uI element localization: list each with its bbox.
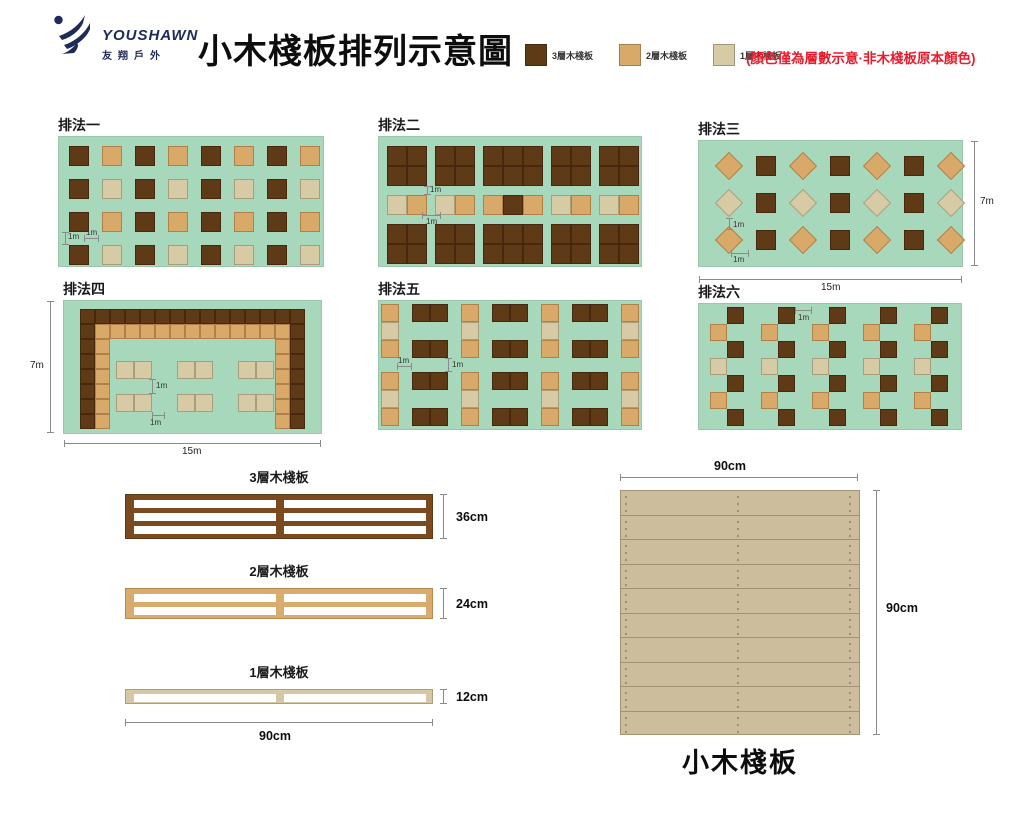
nail-dot bbox=[737, 692, 739, 694]
pallet-3layer bbox=[503, 146, 523, 166]
pallet-2layer bbox=[914, 392, 931, 409]
plank bbox=[621, 540, 859, 565]
pallet-1layer bbox=[387, 195, 407, 215]
pallet-3layer bbox=[572, 408, 590, 426]
nail-dot bbox=[849, 626, 851, 628]
pallet-3layer bbox=[412, 304, 430, 322]
pallet-3layer bbox=[931, 409, 948, 426]
pallet-3layer bbox=[756, 230, 776, 250]
nail-dot bbox=[737, 584, 739, 586]
pallet-3layer bbox=[230, 309, 245, 324]
pallet-2layer bbox=[461, 408, 479, 426]
pallet-3layer bbox=[455, 166, 475, 186]
legend-swatch-3layer bbox=[525, 44, 547, 66]
brand-name: YOUSHAWN bbox=[102, 27, 198, 44]
pallet-3layer bbox=[483, 166, 503, 186]
pallet-2layer bbox=[381, 304, 399, 322]
pallet-2layer bbox=[621, 304, 639, 322]
pallet-3layer bbox=[599, 146, 619, 166]
nail-dot bbox=[625, 521, 627, 523]
pallet-top-view bbox=[620, 490, 860, 735]
pallet-2layer bbox=[863, 152, 891, 180]
pallet-3layer bbox=[931, 341, 948, 358]
dimension-label: 90cm bbox=[259, 729, 291, 743]
pallet-2layer bbox=[523, 195, 543, 215]
pallet-3layer bbox=[267, 146, 287, 166]
pallet-3layer bbox=[503, 195, 523, 215]
pallet-3layer bbox=[551, 244, 571, 264]
pallet-2layer bbox=[621, 340, 639, 358]
dimension-label: 1m bbox=[798, 313, 809, 322]
nail-dot bbox=[625, 643, 627, 645]
plank bbox=[621, 589, 859, 614]
nail-dot bbox=[849, 510, 851, 512]
pallet-2layer bbox=[863, 226, 891, 254]
pallet-3layer bbox=[201, 212, 221, 232]
brand-subtitle: 友翔戶外 bbox=[102, 47, 198, 62]
dimension-line bbox=[152, 379, 153, 394]
plank bbox=[621, 687, 859, 712]
pallet-2layer bbox=[812, 392, 829, 409]
pallet-3layer bbox=[503, 244, 523, 264]
pallet-1layer bbox=[541, 390, 559, 408]
pallet-1layer bbox=[761, 358, 778, 375]
youshawn-logo-icon bbox=[52, 14, 98, 60]
pallet-2layer bbox=[140, 324, 155, 339]
pallet-1layer bbox=[300, 179, 320, 199]
pallet-2layer bbox=[95, 324, 110, 339]
pallet-2layer bbox=[715, 152, 743, 180]
pallet-1layer bbox=[541, 322, 559, 340]
nail-dot bbox=[625, 633, 627, 635]
pallet-2layer bbox=[710, 324, 727, 341]
pallet-1layer bbox=[234, 179, 254, 199]
pallet-3layer bbox=[290, 339, 305, 354]
pallet-3layer bbox=[756, 193, 776, 213]
pallet-3layer bbox=[215, 309, 230, 324]
pallet-3layer bbox=[430, 408, 448, 426]
pallet-3layer bbox=[407, 244, 427, 264]
pallet-1layer bbox=[812, 358, 829, 375]
pallet-3layer bbox=[80, 369, 95, 384]
pallet-3layer bbox=[551, 224, 571, 244]
layout-canvas-five: 1m1m bbox=[378, 300, 642, 430]
pallet-3layer bbox=[200, 309, 215, 324]
pallet-2layer bbox=[483, 195, 503, 215]
nail-dot bbox=[737, 577, 739, 579]
pallet-3layer bbox=[830, 193, 850, 213]
plank-slot bbox=[284, 500, 426, 508]
pallet-3layer bbox=[829, 375, 846, 392]
nail-dot bbox=[625, 626, 627, 628]
pallet-2layer bbox=[461, 304, 479, 322]
nail-dot bbox=[625, 682, 627, 684]
nail-dot bbox=[849, 657, 851, 659]
pallet-3layer bbox=[407, 166, 427, 186]
pallet-2layer bbox=[95, 369, 110, 384]
pallet-3layer bbox=[727, 409, 744, 426]
nail-dot bbox=[737, 503, 739, 505]
pallet-1layer bbox=[234, 245, 254, 265]
nail-dot bbox=[737, 608, 739, 610]
nail-dot bbox=[849, 643, 851, 645]
nail-dot bbox=[737, 570, 739, 572]
pallet-3layer bbox=[140, 309, 155, 324]
pallet-3layer bbox=[590, 340, 608, 358]
pallet-3layer bbox=[492, 372, 510, 390]
pallet-3layer bbox=[125, 309, 140, 324]
pallet-2layer bbox=[914, 324, 931, 341]
pallet-3layer bbox=[492, 340, 510, 358]
pallet-3layer bbox=[778, 307, 795, 324]
pallet-3layer bbox=[407, 224, 427, 244]
pallet-2layer bbox=[541, 408, 559, 426]
pallet-1layer bbox=[621, 390, 639, 408]
pallet-3layer bbox=[492, 408, 510, 426]
pallet-2layer bbox=[260, 324, 275, 339]
pallet-2layer bbox=[95, 399, 110, 414]
pallet-3layer bbox=[599, 166, 619, 186]
pallet-2layer bbox=[234, 146, 254, 166]
plank bbox=[621, 565, 859, 590]
pallet-arrangement-poster: YOUSHAWN 友翔戶外 小木棧板排列示意圖 3層木棧板 2層木棧板 1層木棧… bbox=[0, 0, 1024, 821]
pallet-2layer bbox=[789, 226, 817, 254]
nail-dot bbox=[625, 552, 627, 554]
pallet-2layer bbox=[789, 152, 817, 180]
pallet-2layer bbox=[407, 195, 427, 215]
pallet-2layer bbox=[185, 324, 200, 339]
dimension-label: 1m bbox=[68, 232, 79, 241]
pallet-3layer bbox=[880, 341, 897, 358]
pallet-3layer bbox=[590, 372, 608, 390]
pallet-2layer bbox=[234, 212, 254, 232]
layout-canvas-four: 1m1m7m15m bbox=[63, 300, 322, 434]
nail-dot bbox=[625, 577, 627, 579]
pallet-2layer bbox=[937, 226, 965, 254]
layout-label-three: 排法三 bbox=[698, 119, 740, 139]
nail-dot bbox=[849, 535, 851, 537]
nail-dot bbox=[625, 601, 627, 603]
pallet-2layer bbox=[215, 324, 230, 339]
pallet-3layer bbox=[135, 146, 155, 166]
dimension-line bbox=[620, 477, 858, 478]
dimension-line bbox=[64, 443, 321, 444]
nail-dot bbox=[625, 528, 627, 530]
pallet-3layer bbox=[756, 156, 776, 176]
pallet-3layer bbox=[829, 409, 846, 426]
pallet-2layer bbox=[110, 324, 125, 339]
pallet-2layer bbox=[200, 324, 215, 339]
pallet-3layer bbox=[435, 244, 455, 264]
nail-dot bbox=[849, 668, 851, 670]
plank bbox=[621, 491, 859, 516]
nail-dot bbox=[625, 717, 627, 719]
pallet-3layer bbox=[80, 309, 95, 324]
pallet-3layer bbox=[619, 146, 639, 166]
pallet-3layer bbox=[483, 146, 503, 166]
nail-dot bbox=[849, 650, 851, 652]
pallet-3layer bbox=[245, 309, 260, 324]
pallet-3layer bbox=[904, 193, 924, 213]
pallet-2layer bbox=[230, 324, 245, 339]
pallet-3layer bbox=[275, 309, 290, 324]
pallet-1layer bbox=[789, 189, 817, 217]
pallet-3layer bbox=[571, 166, 591, 186]
nail-dot bbox=[849, 724, 851, 726]
pallet-3layer bbox=[778, 341, 795, 358]
dimension-line bbox=[50, 301, 51, 433]
pallet-3layer bbox=[267, 179, 287, 199]
plank bbox=[621, 638, 859, 663]
pallet-2layer bbox=[275, 354, 290, 369]
sideview-label-3layer: 3層木棧板 bbox=[125, 467, 433, 486]
plank bbox=[621, 712, 859, 736]
nail-dot bbox=[737, 535, 739, 537]
sideview-label-2layer: 2層木棧板 bbox=[125, 561, 433, 580]
nail-dot bbox=[737, 559, 739, 561]
nail-dot bbox=[737, 675, 739, 677]
pallet-1layer bbox=[195, 361, 213, 379]
pallet-3layer bbox=[599, 224, 619, 244]
legend-item-3layer: 3層木棧板 bbox=[525, 44, 593, 66]
nail-dot bbox=[849, 577, 851, 579]
pallet-3layer bbox=[135, 212, 155, 232]
dimension-label: 1m bbox=[426, 217, 437, 226]
pallet-3layer bbox=[880, 375, 897, 392]
pallet-1layer bbox=[195, 394, 213, 412]
plank-slot bbox=[284, 594, 426, 602]
pallet-3layer bbox=[727, 307, 744, 324]
dimension-line bbox=[84, 238, 99, 239]
dimension-line bbox=[443, 494, 444, 539]
pallet-1layer bbox=[238, 394, 256, 412]
pallet-2layer bbox=[102, 146, 122, 166]
pallet-1layer bbox=[116, 361, 134, 379]
nail-dot bbox=[849, 584, 851, 586]
pallet-3layer bbox=[572, 304, 590, 322]
pallet-3layer bbox=[260, 309, 275, 324]
pallet-1layer bbox=[381, 322, 399, 340]
pallet-3layer bbox=[523, 166, 543, 186]
pallet-3layer bbox=[455, 224, 475, 244]
pallet-2layer bbox=[541, 304, 559, 322]
dimension-label: 7m bbox=[30, 360, 44, 371]
pallet-3layer bbox=[503, 224, 523, 244]
nail-dot bbox=[737, 668, 739, 670]
nail-dot bbox=[849, 675, 851, 677]
pallet-2layer bbox=[95, 384, 110, 399]
nail-dot bbox=[625, 619, 627, 621]
pallet-2layer bbox=[621, 372, 639, 390]
pallet-2layer bbox=[300, 212, 320, 232]
nail-dot bbox=[625, 699, 627, 701]
dimension-line bbox=[974, 141, 975, 266]
nail-dot bbox=[625, 675, 627, 677]
layout-canvas-three: 1m1m7m15m bbox=[698, 140, 963, 267]
pallet-3layer bbox=[412, 408, 430, 426]
pallet-3layer bbox=[503, 166, 523, 186]
pallet-3layer bbox=[290, 414, 305, 429]
nail-dot bbox=[625, 724, 627, 726]
pallet-1layer bbox=[461, 322, 479, 340]
dimension-line bbox=[876, 490, 877, 735]
pallet-1layer bbox=[177, 361, 195, 379]
nail-dot bbox=[625, 594, 627, 596]
pallet-2layer bbox=[95, 414, 110, 429]
pallet-2layer bbox=[541, 340, 559, 358]
pallet-2layer bbox=[275, 384, 290, 399]
nail-dot bbox=[849, 545, 851, 547]
nail-dot bbox=[737, 717, 739, 719]
pallet-3layer bbox=[80, 324, 95, 339]
pallet-3layer bbox=[430, 340, 448, 358]
layout-canvas-two: 1m1m bbox=[378, 136, 642, 267]
pallet-1layer bbox=[168, 179, 188, 199]
pallet-3layer bbox=[510, 372, 528, 390]
dimension-label: 1m bbox=[86, 228, 97, 237]
dimension-label: 1m bbox=[430, 185, 441, 194]
pallet-2layer bbox=[381, 372, 399, 390]
dimension-label: 1m bbox=[452, 360, 463, 369]
nail-dot bbox=[849, 619, 851, 621]
nail-dot bbox=[625, 668, 627, 670]
plank-slot bbox=[284, 694, 426, 702]
pallet-3layer bbox=[290, 384, 305, 399]
dimension-label: 15m bbox=[182, 446, 201, 457]
pallet-1layer bbox=[715, 189, 743, 217]
pallet-3layer bbox=[430, 372, 448, 390]
pallet-1layer bbox=[102, 245, 122, 265]
nail-dot bbox=[625, 692, 627, 694]
pallet-3layer bbox=[430, 304, 448, 322]
pallet-3layer bbox=[829, 341, 846, 358]
pallet-2layer bbox=[715, 226, 743, 254]
pallet-3layer bbox=[201, 179, 221, 199]
pallet-2layer bbox=[761, 392, 778, 409]
nail-dot bbox=[737, 633, 739, 635]
pallet-3layer bbox=[201, 146, 221, 166]
plank-slot bbox=[134, 607, 276, 615]
pallet-3layer bbox=[727, 375, 744, 392]
pallet-3layer bbox=[904, 230, 924, 250]
pallet-1layer bbox=[238, 361, 256, 379]
pallet-3layer bbox=[80, 414, 95, 429]
nail-dot bbox=[737, 601, 739, 603]
pallet-3layer bbox=[619, 166, 639, 186]
dimension-line bbox=[65, 232, 66, 245]
color-disclaimer-note: (顏色僅為層數示意·非木棧板原本顏色) bbox=[746, 47, 976, 67]
pallet-3layer bbox=[830, 156, 850, 176]
dimension-label: 90cm bbox=[714, 459, 746, 473]
pallet-3layer bbox=[387, 224, 407, 244]
pallet-3layer bbox=[387, 146, 407, 166]
pallet-3layer bbox=[931, 307, 948, 324]
legend-label-2layer: 2層木棧板 bbox=[646, 49, 687, 62]
pallet-2layer bbox=[937, 152, 965, 180]
sideview-2layer bbox=[125, 588, 433, 619]
dimension-label: 7m bbox=[980, 196, 994, 207]
pallet-3layer bbox=[829, 307, 846, 324]
pallet-3layer bbox=[931, 375, 948, 392]
pallet-3layer bbox=[455, 244, 475, 264]
pallet-3layer bbox=[290, 354, 305, 369]
pallet-3layer bbox=[170, 309, 185, 324]
pallet-2layer bbox=[812, 324, 829, 341]
pallet-3layer bbox=[80, 354, 95, 369]
pallet-3layer bbox=[412, 372, 430, 390]
dimension-label: 1m bbox=[150, 418, 161, 427]
pallet-3layer bbox=[135, 245, 155, 265]
dimension-line bbox=[795, 310, 812, 311]
pallet-3layer bbox=[290, 324, 305, 339]
nail-dot bbox=[737, 650, 739, 652]
legend-swatch-2layer bbox=[619, 44, 641, 66]
pallet-3layer bbox=[80, 399, 95, 414]
dimension-line bbox=[397, 366, 412, 367]
nail-dot bbox=[849, 682, 851, 684]
pallet-1layer bbox=[551, 195, 571, 215]
pallet-1layer bbox=[116, 394, 134, 412]
pallet-3layer bbox=[455, 146, 475, 166]
nail-dot bbox=[849, 559, 851, 561]
nail-dot bbox=[625, 657, 627, 659]
pallet-2layer bbox=[381, 340, 399, 358]
pallet-3layer bbox=[551, 166, 571, 186]
legend-item-2layer: 2層木棧板 bbox=[619, 44, 687, 66]
nail-dot bbox=[737, 706, 739, 708]
pallet-3layer bbox=[110, 309, 125, 324]
plank-slot bbox=[134, 694, 276, 702]
nail-dot bbox=[625, 650, 627, 652]
nail-dot bbox=[849, 496, 851, 498]
nail-dot bbox=[625, 731, 627, 733]
nail-dot bbox=[849, 633, 851, 635]
pallet-1layer bbox=[168, 245, 188, 265]
nail-dot bbox=[625, 503, 627, 505]
sideview-3layer bbox=[125, 494, 433, 539]
nail-dot bbox=[737, 724, 739, 726]
nail-dot bbox=[625, 510, 627, 512]
plank-slot bbox=[284, 526, 426, 534]
nail-dot bbox=[737, 731, 739, 733]
pallet-2layer bbox=[571, 195, 591, 215]
pallet-3layer bbox=[571, 146, 591, 166]
pallet-3layer bbox=[510, 408, 528, 426]
pallet-3layer bbox=[290, 309, 305, 324]
dimension-line bbox=[448, 358, 449, 372]
pallet-2layer bbox=[125, 324, 140, 339]
pallet-3layer bbox=[551, 146, 571, 166]
pallet-2layer bbox=[168, 212, 188, 232]
pallet-3layer bbox=[572, 372, 590, 390]
brand-text: YOUSHAWN 友翔戶外 bbox=[102, 27, 198, 62]
sideview-label-1layer: 1層木棧板 bbox=[125, 662, 433, 681]
nail-dot bbox=[849, 699, 851, 701]
pallet-1layer bbox=[256, 361, 274, 379]
nail-dot bbox=[737, 682, 739, 684]
nail-dot bbox=[849, 608, 851, 610]
pallet-3layer bbox=[155, 309, 170, 324]
pallet-3layer bbox=[135, 179, 155, 199]
nail-dot bbox=[849, 528, 851, 530]
nail-dot bbox=[849, 503, 851, 505]
nail-dot bbox=[625, 570, 627, 572]
layout-label-two: 排法二 bbox=[378, 115, 420, 135]
pallet-3layer bbox=[435, 224, 455, 244]
page-title: 小木棧板排列示意圖 bbox=[198, 24, 513, 73]
pallet-1layer bbox=[863, 189, 891, 217]
dimension-label: 1m bbox=[156, 381, 167, 390]
